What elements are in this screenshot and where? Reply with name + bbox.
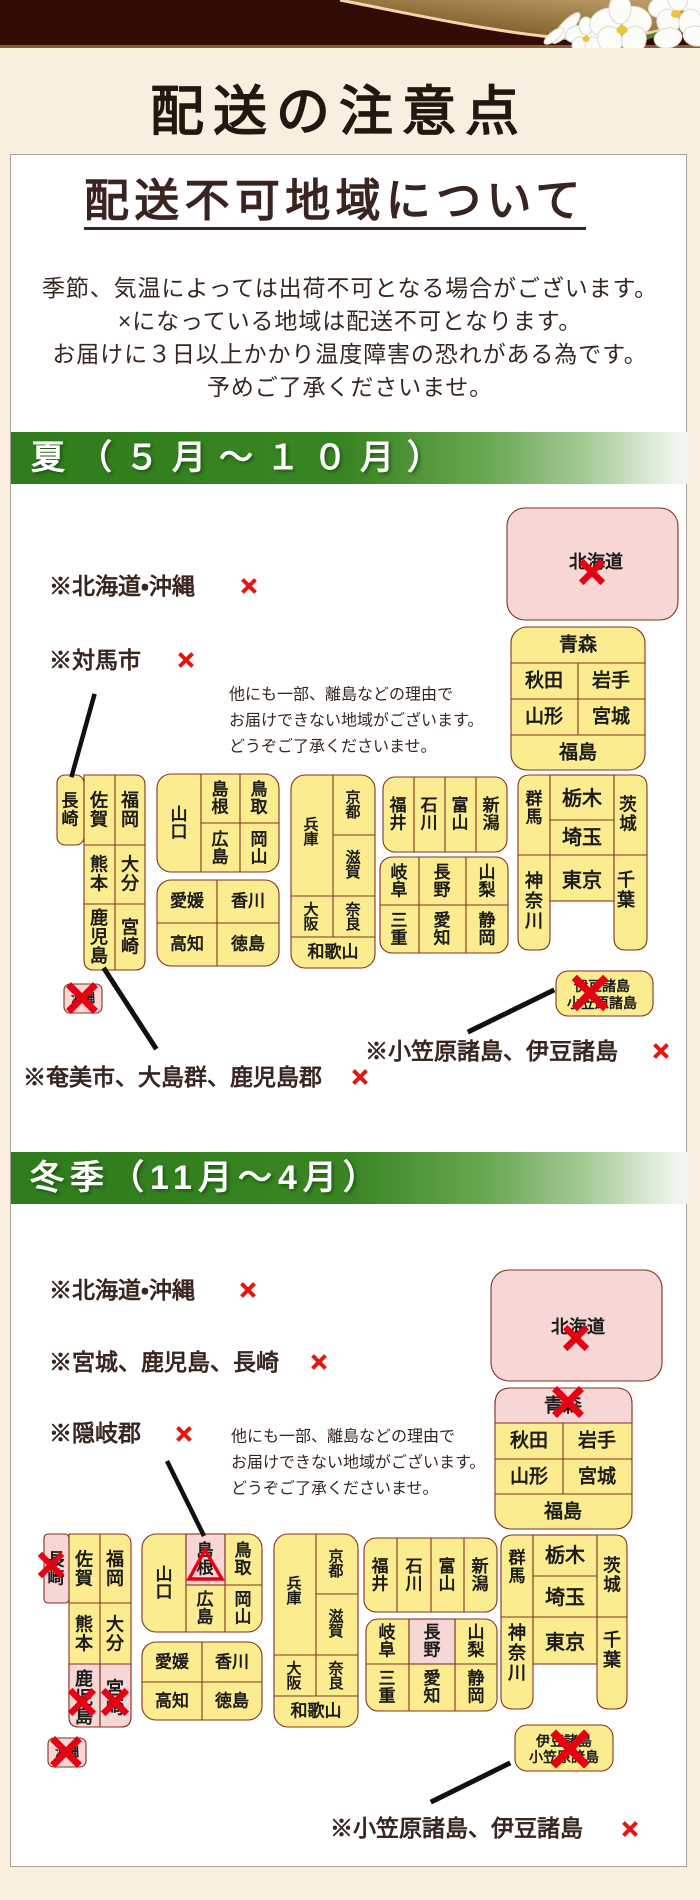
svg-text:山梨: 山梨 <box>478 863 497 900</box>
svg-text:佐賀: 佐賀 <box>89 790 108 830</box>
svg-text:兵庫: 兵庫 <box>286 1574 301 1607</box>
svg-text:長崎: 長崎 <box>62 792 80 829</box>
svg-text:岡山: 岡山 <box>235 1590 252 1627</box>
svg-text:宮城: 宮城 <box>578 1465 616 1488</box>
svg-text:埼玉: 埼玉 <box>562 825 602 849</box>
svg-text:佐賀: 佐賀 <box>74 1549 93 1589</box>
svg-text:香川: 香川 <box>231 892 265 911</box>
svg-text:埼玉: 埼玉 <box>545 1585 585 1609</box>
svg-text:滋賀: 滋賀 <box>327 1607 343 1640</box>
svg-text:福井: 福井 <box>389 795 407 833</box>
svg-text:長野: 長野 <box>434 863 452 900</box>
svg-text:大分: 大分 <box>120 854 140 894</box>
svg-text:香川: 香川 <box>215 1653 249 1672</box>
svg-text:お届けできない地域がございます。: お届けできない地域がございます。 <box>229 711 483 730</box>
svg-text:熊本: 熊本 <box>89 854 109 894</box>
svg-text:山形: 山形 <box>525 706 563 728</box>
svg-text:大分: 大分 <box>105 1614 125 1654</box>
svg-text:千葉: 千葉 <box>602 1630 622 1670</box>
svg-text:徳島: 徳島 <box>214 1691 249 1711</box>
svg-text:富山: 富山 <box>452 795 469 833</box>
svg-text:静岡: 静岡 <box>468 1668 485 1706</box>
svg-text:高知: 高知 <box>170 934 204 954</box>
svg-text:栃木: 栃木 <box>545 1543 586 1567</box>
svg-text:京都: 京都 <box>344 788 360 821</box>
svg-text:新潟: 新潟 <box>482 795 500 833</box>
svg-text:新潟: 新潟 <box>471 1556 489 1594</box>
svg-text:和歌山: 和歌山 <box>308 942 359 962</box>
svg-text:岡山: 岡山 <box>251 830 268 867</box>
svg-text:山口: 山口 <box>171 805 188 842</box>
svg-text:東京: 東京 <box>562 868 602 892</box>
svg-text:静岡: 静岡 <box>479 910 496 948</box>
svg-text:愛知: 愛知 <box>423 1668 441 1706</box>
svg-text:群馬: 群馬 <box>509 1548 526 1586</box>
svg-text:他にも一部、離島などの理由で: 他にも一部、離島などの理由で <box>231 1428 455 1446</box>
svg-text:和歌山: 和歌山 <box>291 1701 342 1721</box>
svg-text:他にも一部、離島などの理由で: 他にも一部、離島などの理由で <box>229 686 453 704</box>
svg-text:千葉: 千葉 <box>616 870 636 910</box>
svg-text:福井: 福井 <box>371 1556 389 1594</box>
svg-text:※隠岐郡: ※隠岐郡 <box>49 1420 141 1446</box>
svg-text:大阪: 大阪 <box>286 1659 302 1692</box>
svg-text:秋田: 秋田 <box>510 1429 548 1452</box>
svg-text:茨城: 茨城 <box>619 795 637 834</box>
svg-text:徳島: 徳島 <box>230 934 265 954</box>
svg-text:※対馬市: ※対馬市 <box>49 647 141 673</box>
svg-text:岐阜: 岐阜 <box>391 862 409 900</box>
svg-text:石川: 石川 <box>420 796 438 833</box>
svg-text:熊本: 熊本 <box>74 1614 94 1654</box>
svg-text:福島: 福島 <box>543 1500 582 1523</box>
svg-text:岩手: 岩手 <box>591 669 630 692</box>
svg-text:大阪: 大阪 <box>303 900 319 933</box>
svg-text:鹿児島: 鹿児島 <box>89 907 108 966</box>
svg-text:どうぞご了承くださいませ。: どうぞご了承くださいませ。 <box>229 738 437 756</box>
svg-text:奈良: 奈良 <box>327 1659 344 1692</box>
svg-text:福島: 福島 <box>558 741 597 764</box>
svg-text:広島: 広島 <box>197 1590 214 1627</box>
svg-text:※北海道・沖縄: ※北海道・沖縄 <box>49 573 195 599</box>
svg-text:※小笠原諸島、伊豆諸島: ※小笠原諸島、伊豆諸島 <box>330 1815 583 1841</box>
svg-text:島根: 島根 <box>212 779 230 817</box>
svg-text:福岡: 福岡 <box>105 1549 124 1589</box>
svg-text:石川: 石川 <box>405 1557 423 1594</box>
svg-text:栃木: 栃木 <box>562 786 603 810</box>
svg-text:福岡: 福岡 <box>120 790 139 830</box>
svg-text:鳥取: 鳥取 <box>251 779 269 817</box>
svg-text:山形: 山形 <box>510 1466 548 1488</box>
svg-text:※北海道・沖縄: ※北海道・沖縄 <box>49 1277 195 1303</box>
svg-text:※宮城、鹿児島、長崎: ※宮城、鹿児島、長崎 <box>49 1349 279 1375</box>
svg-text:高知: 高知 <box>155 1691 189 1711</box>
svg-text:山口: 山口 <box>156 1565 173 1602</box>
svg-text:長野: 長野 <box>424 1623 442 1660</box>
svg-text:群馬: 群馬 <box>526 789 543 827</box>
svg-text:鳥取: 鳥取 <box>235 1540 253 1578</box>
svg-text:広島: 広島 <box>212 830 229 867</box>
svg-text:宮城: 宮城 <box>592 705 630 728</box>
svg-text:京都: 京都 <box>327 1547 343 1580</box>
svg-text:愛媛: 愛媛 <box>155 1652 190 1672</box>
svg-text:どうぞご了承くださいませ。: どうぞご了承くださいませ。 <box>231 1480 439 1498</box>
svg-text:宮崎: 宮崎 <box>121 917 139 957</box>
svg-text:三重: 三重 <box>391 911 408 948</box>
svg-text:奈良: 奈良 <box>344 900 361 933</box>
svg-text:秋田: 秋田 <box>525 669 563 692</box>
svg-text:お届けできない地域がございます。: お届けできない地域がございます。 <box>231 1453 485 1472</box>
svg-text:青森: 青森 <box>559 633 598 656</box>
svg-text:滋賀: 滋賀 <box>344 848 360 881</box>
svg-text:兵庫: 兵庫 <box>303 815 318 848</box>
svg-text:三重: 三重 <box>379 1669 396 1706</box>
svg-text:愛媛: 愛媛 <box>170 891 205 911</box>
svg-text:山梨: 山梨 <box>467 1623 486 1660</box>
svg-text:岐阜: 岐阜 <box>379 1622 397 1660</box>
svg-text:岩手: 岩手 <box>577 1429 616 1452</box>
svg-text:神奈川: 神奈川 <box>524 870 544 931</box>
svg-text:愛知: 愛知 <box>433 910 451 948</box>
svg-text:富山: 富山 <box>439 1556 456 1594</box>
svg-text:※奄美市、大島群、鹿児島郡: ※奄美市、大島群、鹿児島郡 <box>23 1064 322 1090</box>
svg-text:※小笠原諸島、伊豆諸島: ※小笠原諸島、伊豆諸島 <box>365 1038 618 1064</box>
svg-text:茨城: 茨城 <box>603 1556 621 1595</box>
svg-text:神奈川: 神奈川 <box>507 1622 527 1683</box>
svg-text:東京: 東京 <box>545 1630 585 1654</box>
